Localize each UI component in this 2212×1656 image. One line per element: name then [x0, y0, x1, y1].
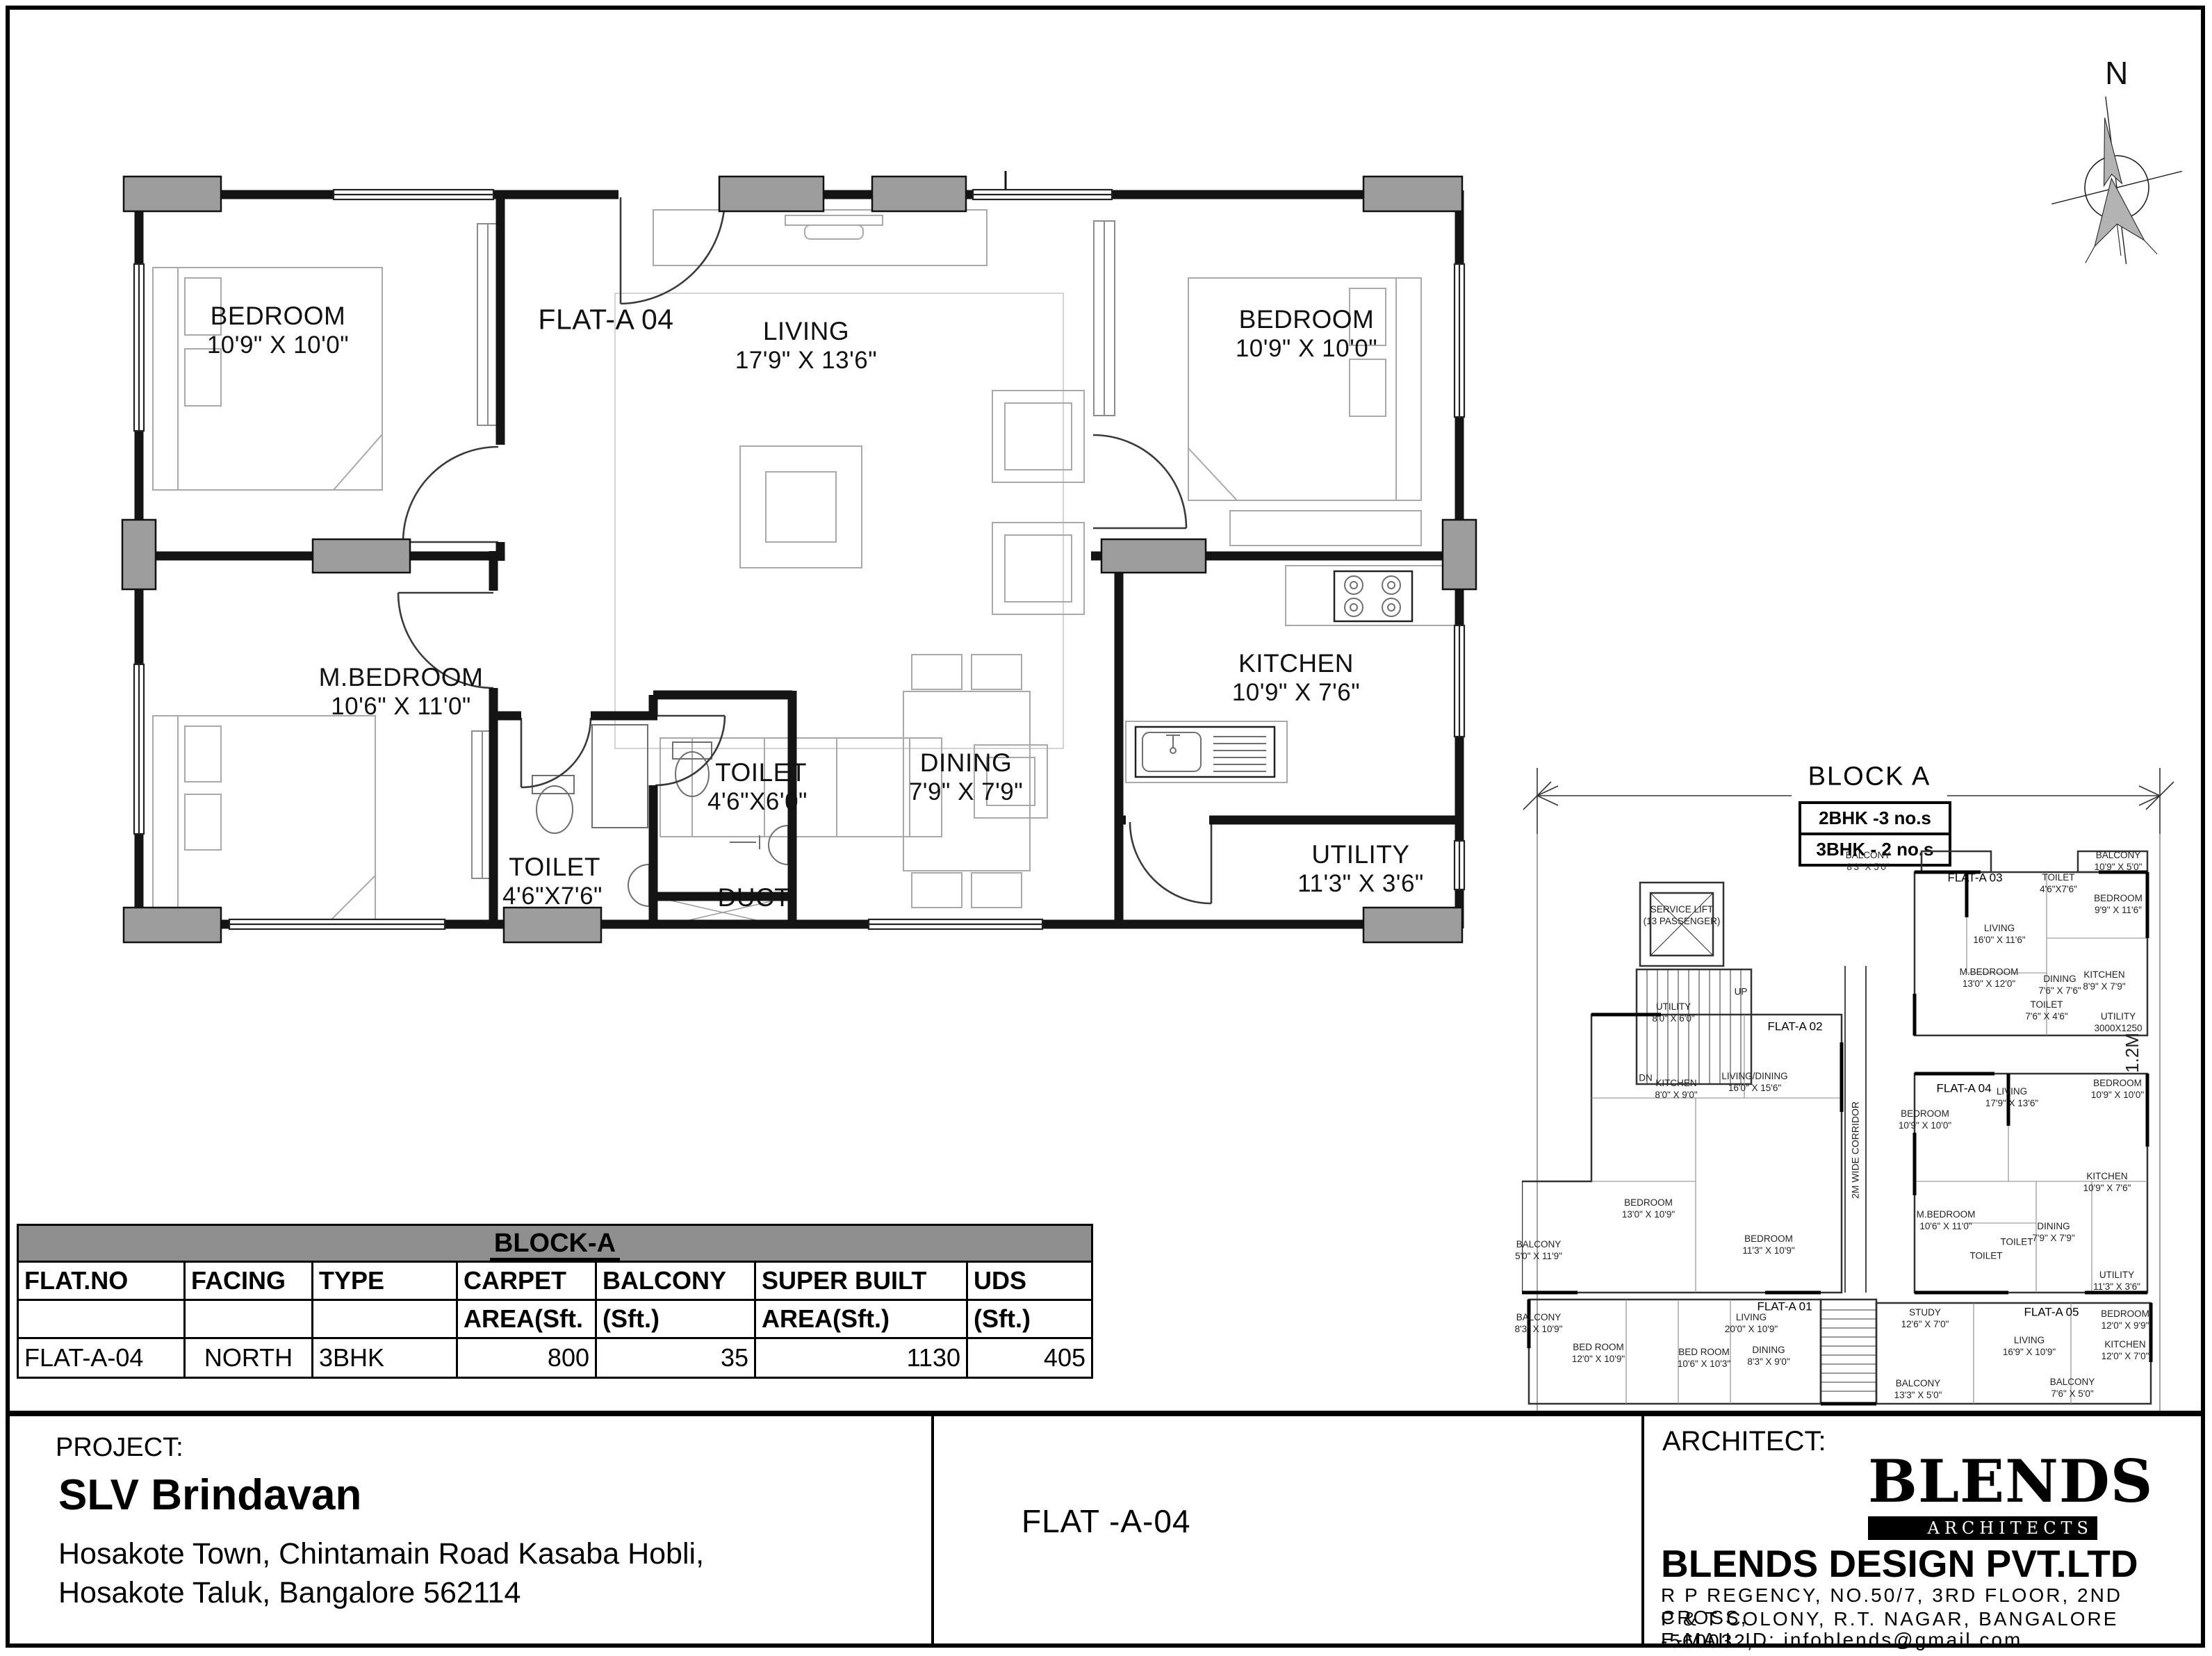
table-title: BLOCK-A [490, 1229, 620, 1262]
key-room-label: DINING 7'6" X 7'6" [2038, 974, 2081, 997]
title-block-divider-v2 [1641, 1416, 1644, 1648]
table-header-row: FLAT.NO FACING TYPE CARPET BALCONY SUPER… [18, 1262, 1092, 1300]
room-dims: 10'9" X 7'6" [1232, 679, 1360, 707]
room-label: BEDROOM [211, 302, 346, 331]
key-room-label: DINING 8'3" X 9'0" [1747, 1345, 1789, 1368]
key-room-label: BALCONY 7'6" X 5'0" [2050, 1377, 2095, 1400]
key-room-label: STUDY 12'6" X 7'0" [1901, 1307, 1949, 1331]
room-dims: 11'3" X 3'6" [1297, 870, 1424, 898]
key-room-label: M.BEDROOM 13'0" X 12'0" [1960, 967, 2019, 990]
key-room-label: KITCHEN 12'0" X 7'0" [2102, 1339, 2149, 1363]
key-room-label: BALCONY 5'0" X 11'9" [1515, 1239, 1562, 1263]
flat-label: FLAT-A 04 [538, 304, 673, 336]
key-room-label: BALCONY 8'3" X 10'9" [1515, 1312, 1563, 1336]
project-name: SLV Brindavan [58, 1470, 361, 1520]
key-flat-label: FLAT-A 04 [1936, 1081, 1991, 1095]
room-label: DINING [920, 748, 1013, 778]
room-dims: 10'9" X 10'0" [1236, 335, 1377, 363]
project-address-line1: Hosakote Town, Chintamain Road Kasaba Ho… [58, 1537, 704, 1571]
col-superbuilt: SUPER BUILT [755, 1262, 967, 1300]
cell-balcony: 35 [596, 1338, 755, 1378]
key-room-label: DINING 7'9" X 7'9" [2032, 1221, 2074, 1245]
key-flat-label: FLAT-A 05 [2024, 1304, 2079, 1319]
room-label: UTILITY [1311, 840, 1409, 869]
col-balcony: BALCONY [596, 1262, 755, 1300]
col-carpet: CARPET [457, 1262, 596, 1300]
key-dim-label: 1.2M [2121, 1033, 2144, 1073]
col-type: TYPE [313, 1262, 457, 1300]
col-facing: FACING [185, 1262, 313, 1300]
key-room-label: BEDROOM 9'9" X 11'6" [2094, 893, 2143, 917]
key-room-label: UTILITY 3000X1250 [2094, 1011, 2142, 1035]
key-room-label: BEDROOM 10'9" X 10'0" [1899, 1108, 1951, 1132]
architect-logo: BLENDS ARCHITECTS [1868, 1450, 2097, 1540]
col-uds: UDS [967, 1262, 1092, 1300]
room-dims: 7'9" X 7'9" [909, 778, 1023, 806]
table-title-cell: BLOCK-A [18, 1225, 1092, 1262]
floor-plan-drawing [104, 104, 1494, 973]
key-room-label: LIVING 17'9" X 13'6" [1985, 1086, 2038, 1110]
room-dims: 10'9" X 10'0" [207, 331, 349, 359]
cell-uds: 405 [967, 1338, 1092, 1378]
key-corridor-label: 2M WIDE CORRIDOR [1849, 1101, 1862, 1199]
key-room-label: SERVICE LIFT (13 PASSENGER) [1644, 904, 1721, 928]
sheet-title: FLAT -A-04 [1022, 1502, 1190, 1540]
key-flat-label: FLAT-A 02 [1767, 1019, 1822, 1033]
cell-facing: NORTH [185, 1338, 313, 1378]
room-dims: 4'6"X7'6" [502, 883, 603, 910]
key-room-label: BEDROOM 13'0" X 10'9" [1622, 1197, 1675, 1221]
room-dims: 4'6"X6'0" [707, 788, 808, 816]
project-label: PROJECT: [56, 1433, 183, 1463]
key-room-label: BEDROOM 12'0" X 9'9" [2101, 1309, 2149, 1332]
legend-2bhk: 2BHK -3 no.s [1801, 804, 1949, 835]
key-room-label: KITCHEN 10'9" X 7'6" [2083, 1171, 2131, 1195]
logo-subtext: ARCHITECTS [1868, 1516, 2097, 1540]
room-label: LIVING [763, 317, 849, 346]
room-label: TOILET [715, 758, 807, 787]
key-room-label: BED ROOM 10'6" X 10'3" [1678, 1347, 1730, 1370]
cell-type: 3BHK [313, 1338, 457, 1378]
key-room-label: UTILITY 8'0" X 6'0" [1652, 1001, 1694, 1025]
room-dims: 10'6" X 11'0" [331, 693, 471, 721]
key-room-label: LIVING 16'9" X 10'9" [2003, 1335, 2056, 1359]
cell-superbuilt: 1130 [755, 1338, 967, 1378]
key-room-label: LIVING/DINING 16'0" X 15'6" [1721, 1071, 1787, 1095]
cell-flatno: FLAT-A-04 [18, 1338, 185, 1378]
key-room-label: LIVING 20'0" X 10'9" [1725, 1312, 1778, 1336]
key-flat-label: FLAT-A 03 [1947, 870, 2002, 885]
title-block-divider-v1 [931, 1416, 934, 1648]
key-room-label: LIVING 16'0" X 11'6" [1973, 923, 2025, 946]
room-label: TOILET [509, 853, 600, 882]
key-stair-label: UP [1735, 987, 1748, 999]
table-subheader-row: AREA(Sft. (Sft.) AREA(Sft.) (Sft.) [18, 1300, 1092, 1338]
title-block-divider [6, 1411, 2205, 1416]
key-room-label: KITCHEN 8'0" X 9'0" [1655, 1078, 1697, 1101]
room-label: DUCT [718, 883, 791, 912]
key-room-label: TOILET [1969, 1251, 2002, 1263]
firm-name: BLENDS DESIGN PVT.LTD [1661, 1541, 2138, 1586]
table-data-row: FLAT-A-04 NORTH 3BHK 800 35 1130 405 [18, 1338, 1092, 1378]
key-room-label: BED ROOM 12'0" X 10'9" [1572, 1342, 1625, 1366]
key-room-label: UTILITY 11'3" X 3'6" [2093, 1270, 2140, 1293]
key-room-label: TOILET 7'6" X 4'6" [2025, 999, 2067, 1023]
cell-carpet: 800 [457, 1338, 596, 1378]
key-room-label: BEDROOM 10'9" X 10'0" [2091, 1078, 2144, 1101]
room-label: M.BEDROOM [319, 663, 484, 692]
key-room-label: TOILET 4'6"X7'6" [2040, 872, 2077, 896]
key-room-label: M.BEDROOM 10'6" X 11'0" [1917, 1209, 1976, 1233]
key-room-label: TOILET [2000, 1237, 2033, 1249]
room-label: BEDROOM [1239, 305, 1375, 334]
drawing-sheet: BEDROOM 10'9" X 10'0" FLAT-A 04 LIVING 1… [0, 0, 2212, 1656]
project-address-line2: Hosakote Taluk, Bangalore 562114 [58, 1576, 521, 1610]
key-room-label: BALCONY 8'3" X 5'0" [1846, 850, 1891, 874]
key-room-label: KITCHEN 8'9" X 7'9" [2083, 969, 2125, 993]
logo-text: BLENDS [1868, 1450, 2097, 1514]
compass-icon [2043, 42, 2196, 264]
room-label: KITCHEN [1238, 649, 1354, 678]
room-dims: 17'9" X 13'6" [735, 347, 877, 375]
area-statement-table: BLOCK-A FLAT.NO FACING TYPE CARPET BALCO… [17, 1224, 1093, 1379]
architect-label: ARCHITECT: [1662, 1426, 1826, 1457]
key-room-label: BEDROOM 11'3" X 10'9" [1742, 1233, 1794, 1257]
key-stair-label: DN [1639, 1073, 1653, 1085]
key-room-label: BALCONY 13'3" X 5'0" [1894, 1378, 1942, 1402]
col-flatno: FLAT.NO [18, 1262, 185, 1300]
key-room-label: BALCONY 10'9" X 5'0" [2095, 850, 2143, 874]
firm-address-line3: E-MAIL ID: infoblends@gmail.com [1661, 1629, 2022, 1651]
